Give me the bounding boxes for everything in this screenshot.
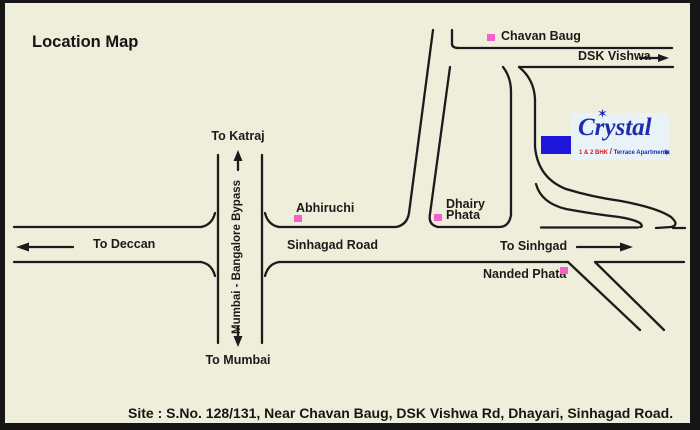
location-map-frame: Location Map To Katraj To Mumbai To Decc… [0, 0, 700, 430]
katraj-arrow [234, 150, 243, 170]
chavan-baug-marker [487, 34, 495, 41]
label-nanded-phata: Nanded Phata [483, 268, 566, 280]
label-to-mumbai: To Mumbai [205, 354, 270, 366]
logo-tagline-bhk: 1 & 2 BHK [579, 150, 608, 156]
label-to-deccan: To Deccan [93, 238, 155, 250]
deccan-arrow [16, 243, 73, 252]
logo-tagline-slash: / [610, 147, 612, 156]
nanded-phata-marker [560, 267, 568, 274]
dhairy-phata-marker [434, 214, 442, 221]
nanded-phata-road [568, 262, 684, 330]
label-to-sinhgad: To Sinhgad [500, 240, 567, 252]
label-chavan-baug: Chavan Baug [501, 30, 581, 42]
label-dhairy-phata: Dhairy Phata [446, 199, 485, 221]
crystal-logo: ✶ Crystal 1 & 2 BHK / Terrace Apartments… [571, 113, 669, 160]
site-location-rect [541, 136, 571, 154]
label-dhairy-line2: Phata [446, 210, 485, 221]
label-abhiruchi: Abhiruchi [296, 202, 354, 214]
sinhgad-arrow [577, 243, 633, 252]
map-canvas: Location Map To Katraj To Mumbai To Decc… [5, 3, 690, 423]
site-address: Site : S.No. 128/131, Near Chavan Baug, … [128, 405, 673, 421]
logo-name: Crystal [578, 114, 652, 142]
abhiruchi-marker [294, 215, 302, 222]
page-title: Location Map [32, 36, 138, 48]
label-bypass: Mumbai - Bangalore Bypass [231, 180, 243, 334]
label-dsk-vishwa: DSK Vishwa [578, 50, 651, 62]
logo-tagline-terrace: Terrace Apartments [614, 150, 670, 156]
label-sinhagad-road: Sinhagad Road [287, 239, 378, 251]
sparkle-icon: ✶ [663, 148, 671, 159]
road-network [5, 3, 700, 430]
logo-tagline: 1 & 2 BHK / Terrace Apartments [579, 147, 670, 156]
label-to-katraj: To Katraj [211, 130, 264, 142]
